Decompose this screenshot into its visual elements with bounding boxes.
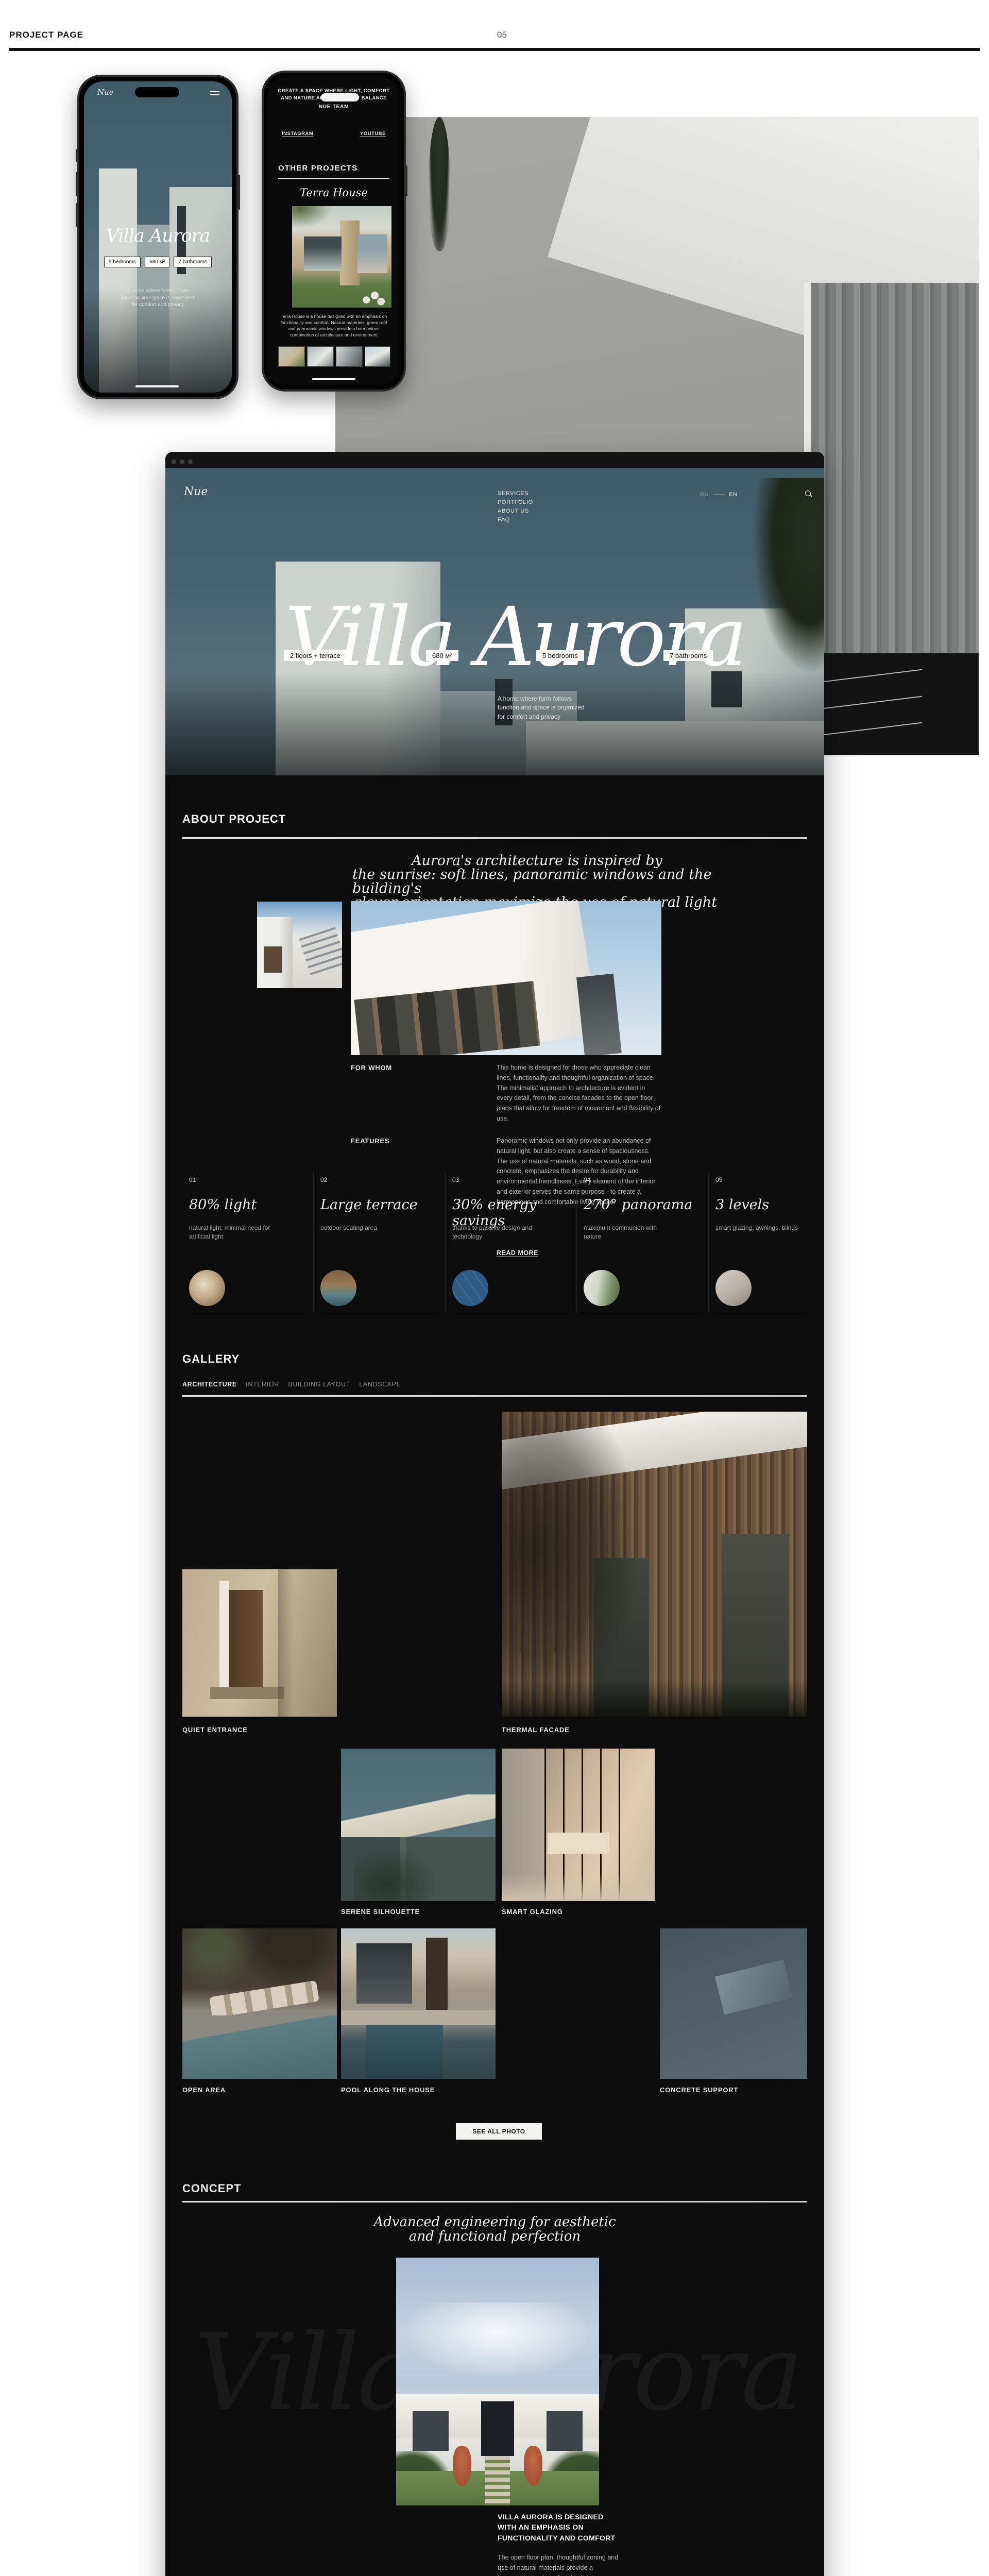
tag-area: 680 м² <box>426 650 458 661</box>
nue-team-label[interactable]: NUE TEAM <box>268 104 399 110</box>
phone1-screen: Nue Villa Aurora 5 bedrooms 680 м² 7 bat… <box>84 81 232 393</box>
instagram-link[interactable]: INSTAGRAM <box>282 131 313 137</box>
gallery-filters: ARCHITECTURE INTERIOR BUILDING LAYOUT LA… <box>182 1381 408 1388</box>
hero-section: Nue SERVICES PORTFOLIO ABOUT US FAQ RU E… <box>165 468 824 775</box>
stat-light: 01 80% light natural light, minimal need… <box>189 1172 305 1313</box>
tag-area: 680 м² <box>145 257 169 267</box>
see-all-photo-button[interactable]: SEE ALL PHOTO <box>455 2123 542 2140</box>
about-rule <box>182 837 807 839</box>
caption-serene-silhouette: SERENE SILHOUETTE <box>341 1908 420 1916</box>
concept-caption-title: VILLA AURORA IS DESIGNED WITH AN EMPHASI… <box>498 2512 621 2543</box>
window-control-dot[interactable] <box>180 460 184 464</box>
concept-rule <box>182 2201 807 2202</box>
about-photo-stairs <box>257 902 342 988</box>
main-nav: SERVICES PORTFOLIO ABOUT US FAQ <box>498 490 533 526</box>
stat-levels-image <box>715 1270 752 1306</box>
stat-levels: 05 3 levels smart glazing, awnings, blin… <box>715 1172 807 1313</box>
project-terra-title[interactable]: Terra House <box>268 187 399 199</box>
stat-energy: 03 30% energy savings thanks to passive … <box>452 1172 568 1313</box>
caption-thermal-facade: THERMAL FACADE <box>502 1726 570 1734</box>
presentation-canvas: PROJECT PAGE 05 Nue Villa Auror <box>0 0 989 2576</box>
concept-photo-villa <box>396 2258 599 2505</box>
tag-bedrooms: 5 bedrooms <box>104 257 141 267</box>
about-photo-building <box>351 901 661 1055</box>
gallery-photo-pool[interactable] <box>341 1928 496 2079</box>
page-number: 05 <box>497 30 507 40</box>
about-heading: ABOUT PROJECT <box>182 812 286 826</box>
thumbnail-2[interactable] <box>307 346 334 367</box>
header-divider <box>9 48 980 51</box>
caption-open-area: OPEN AREA <box>182 2086 226 2094</box>
highlight-pill <box>321 93 359 101</box>
project-thumbnails <box>278 346 389 367</box>
stat-panorama-image <box>584 1270 620 1306</box>
phone-mockup-projects: CREATE A SPACE WHERE LIGHT, COMFORT AND … <box>262 71 406 392</box>
hero-tree-shape <box>753 478 824 674</box>
concept-tagline: Advanced engineering for aesthetic and f… <box>165 2215 824 2244</box>
nav-about-us[interactable]: ABOUT US <box>498 508 533 514</box>
stat-panorama: 04 270° panorama maximum communion with … <box>584 1172 700 1313</box>
other-projects-rule <box>278 178 389 179</box>
gallery-photo-serene-silhouette[interactable] <box>341 1749 496 1901</box>
gallery-photo-thermal-facade[interactable] <box>502 1412 807 1717</box>
phone1-hero-title: Villa Aurora <box>84 226 232 246</box>
nav-services[interactable]: SERVICES <box>498 490 533 497</box>
stat-terrace: 02 Large terrace outdoor seating area <box>320 1172 436 1313</box>
gallery-photo-smart-glazing[interactable] <box>502 1749 655 1901</box>
phone1-hero-caption: A home where form follows function and s… <box>94 287 221 309</box>
other-projects-heading: OTHER PROJECTS <box>278 164 357 173</box>
thumbnail-4[interactable] <box>365 346 390 367</box>
site-logo[interactable]: Nue <box>184 485 208 498</box>
filter-landscape[interactable]: LANDSCAPE <box>359 1381 401 1388</box>
caption-quiet-entrance: QUIET ENTRANCE <box>182 1726 248 1734</box>
stat-energy-image <box>452 1270 488 1306</box>
lang-en[interactable]: EN <box>729 492 737 498</box>
gallery-photo-concrete-support[interactable] <box>660 1928 807 2079</box>
filter-building-layout[interactable]: BUILDING LAYOUT <box>288 1381 350 1388</box>
window-control-dot[interactable] <box>172 460 176 464</box>
gallery-photo-open-area[interactable] <box>182 1928 337 2079</box>
language-switcher[interactable]: RU EN <box>700 492 738 498</box>
thumbnail-3[interactable] <box>336 346 363 367</box>
tag-bathrooms: 7 bathrooms <box>174 257 212 267</box>
cypress-tree-shape <box>429 117 450 251</box>
lang-ru[interactable]: RU <box>700 492 709 498</box>
tag-bedrooms: 5 bedrooms <box>536 650 584 661</box>
stat-light-image <box>189 1270 225 1306</box>
phone2-screen: CREATE A SPACE WHERE LIGHT, COMFORT AND … <box>268 77 399 385</box>
tag-bathrooms: 7 bathrooms <box>663 650 713 661</box>
terra-house-description: Terra House is a house designed with an … <box>277 313 391 338</box>
filter-architecture[interactable]: ARCHITECTURE <box>182 1381 237 1388</box>
home-indicator <box>312 378 355 380</box>
for-whom-text: This home is designed for those who appr… <box>497 1063 662 1124</box>
terra-house-photo[interactable] <box>292 206 391 308</box>
page-title: PROJECT PAGE <box>9 30 83 40</box>
nav-faq[interactable]: FAQ <box>498 517 533 523</box>
steps-shape <box>818 653 979 755</box>
concept-caption-text: The open floor plan, thoughtful zoning a… <box>498 2553 626 2576</box>
hamburger-menu-icon[interactable] <box>210 89 219 97</box>
gallery-photo-quiet-entrance[interactable] <box>182 1569 337 1717</box>
hero-caption: A home where form follows function and s… <box>498 694 585 721</box>
hero-title: Villa Aurora <box>285 597 744 678</box>
caption-concrete-support: CONCRETE SUPPORT <box>660 2086 738 2094</box>
concept-heading: CONCEPT <box>182 2182 242 2195</box>
caption-pool: POOL ALONG THE HOUSE <box>341 2086 435 2094</box>
phone1-logo[interactable]: Nue <box>97 88 114 97</box>
thumbnail-1[interactable] <box>278 346 305 367</box>
caption-smart-glazing: SMART GLAZING <box>502 1908 563 1916</box>
youtube-link[interactable]: YOUTUBE <box>360 131 386 137</box>
desktop-browser-mockup: Nue SERVICES PORTFOLIO ABOUT US FAQ RU E… <box>165 452 824 2576</box>
gallery-rule <box>182 1395 807 1397</box>
stat-terrace-image <box>320 1270 356 1306</box>
gallery-heading: GALLERY <box>182 1352 240 1366</box>
features-label: FEATURES <box>351 1137 390 1145</box>
for-whom-label: FOR WHOM <box>351 1064 392 1072</box>
dynamic-island <box>135 87 179 97</box>
home-indicator <box>135 385 179 387</box>
browser-titlebar <box>165 452 824 468</box>
phone-mockup-hero: Nue Villa Aurora 5 bedrooms 680 м² 7 bat… <box>77 75 238 399</box>
filter-interior[interactable]: INTERIOR <box>246 1381 279 1388</box>
phone1-tag-row: 5 bedrooms 680 м² 7 bathrooms <box>84 257 232 267</box>
tag-floors: 2 floors + terrace <box>284 650 347 661</box>
nav-portfolio[interactable]: PORTFOLIO <box>498 499 533 505</box>
window-control-dot[interactable] <box>188 460 193 464</box>
